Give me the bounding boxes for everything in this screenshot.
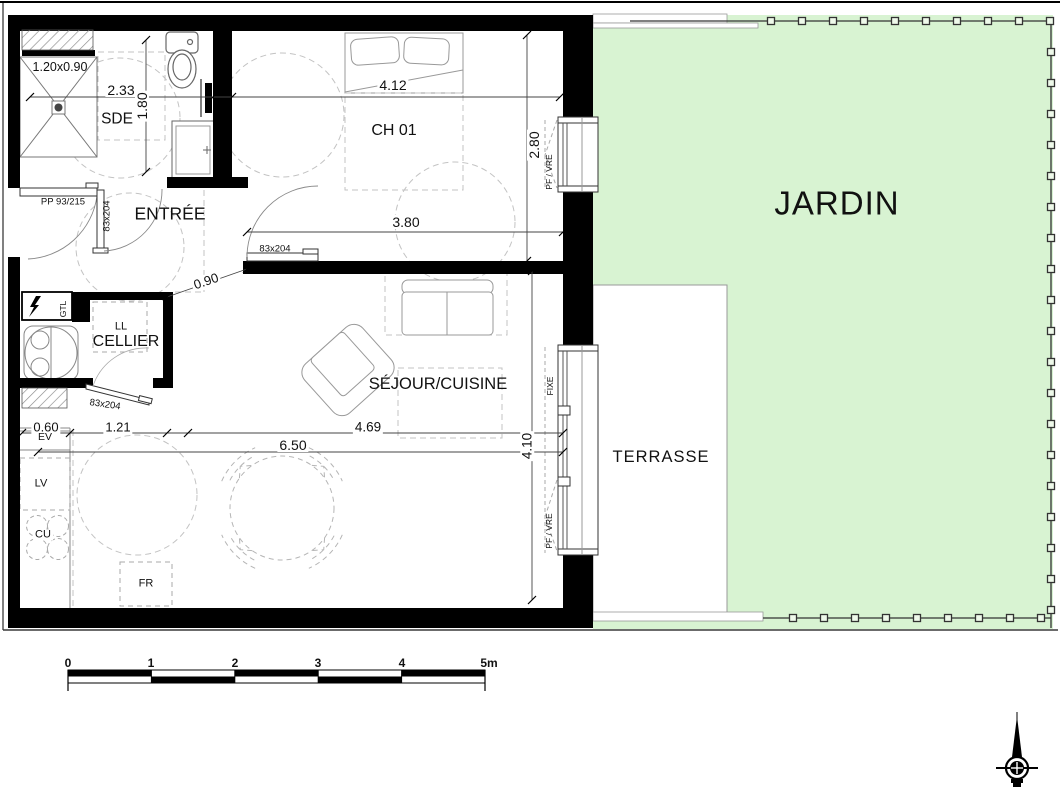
washing-machine bbox=[93, 302, 147, 352]
floor-plan-drawing bbox=[0, 0, 1060, 800]
wall-left-lower bbox=[8, 257, 20, 628]
ch01-door bbox=[247, 186, 318, 261]
cellier-door bbox=[86, 348, 152, 405]
entrance-door bbox=[20, 183, 98, 259]
dishwasher bbox=[20, 458, 70, 510]
gtl-niche bbox=[22, 292, 72, 320]
sde-door bbox=[93, 189, 162, 253]
sejour-zone-dashed bbox=[398, 368, 502, 438]
wall-top bbox=[8, 15, 593, 31]
wall-cellier-bottom-l bbox=[20, 378, 93, 388]
wall-right-2 bbox=[563, 192, 593, 345]
jardin-area bbox=[593, 14, 1053, 629]
wall-ch01-sejour bbox=[243, 261, 563, 274]
terrasse-slab bbox=[593, 285, 727, 615]
wall-cellier-right bbox=[163, 292, 173, 388]
wall-left-upper bbox=[8, 15, 20, 188]
entree-dashes bbox=[175, 190, 204, 292]
towel-radiator bbox=[201, 79, 212, 117]
wall-right-3 bbox=[563, 555, 593, 608]
north-arrow-icon bbox=[996, 712, 1038, 787]
wall-cellier-bottom-r bbox=[153, 378, 173, 388]
vanity-sink bbox=[172, 121, 214, 179]
kitchen-counter bbox=[20, 428, 172, 608]
wall-vanity bbox=[167, 177, 248, 188]
window-ch01 bbox=[545, 117, 598, 192]
wall-cellier-corner bbox=[72, 296, 90, 322]
scale-bar bbox=[68, 670, 485, 691]
window-sejour bbox=[545, 345, 598, 555]
armchair bbox=[297, 319, 399, 420]
sde-zone-dashed bbox=[98, 52, 165, 140]
sofa bbox=[385, 272, 507, 335]
fridge bbox=[120, 562, 172, 606]
shower bbox=[20, 57, 97, 157]
dining-table bbox=[222, 448, 343, 569]
wall-sde-duct bbox=[22, 50, 95, 56]
bed bbox=[345, 33, 463, 190]
floor-plan: SDEENTRÉECH 01CELLIERSÉJOUR/CUISINETERRA… bbox=[0, 0, 1060, 800]
wall-right-1 bbox=[563, 15, 593, 117]
wall-bottom bbox=[8, 608, 593, 628]
toilet-icon bbox=[166, 32, 198, 88]
